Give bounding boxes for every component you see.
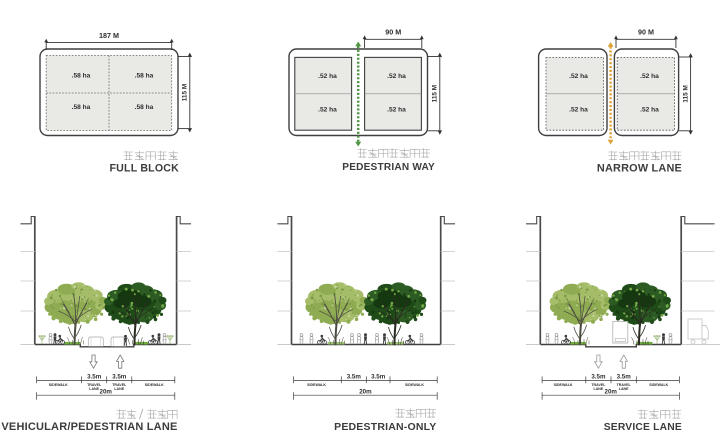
svg-text:LANE: LANE [619,387,629,391]
svg-text:FULL BLOCK: FULL BLOCK [110,162,180,174]
svg-text:SERVICE LANE: SERVICE LANE [604,422,682,433]
svg-text:90 M: 90 M [638,28,654,37]
svg-text:187 M: 187 M [99,31,119,40]
svg-text:.52 ha: .52 ha [569,107,588,114]
svg-text:3.5m: 3.5m [87,373,102,380]
svg-text:SIDEWALK: SIDEWALK [145,383,164,387]
svg-text:.58 ha: .58 ha [72,73,91,80]
svg-text:SIDEWALK: SIDEWALK [307,383,326,387]
svg-text:SIDEWALK: SIDEWALK [405,383,424,387]
svg-text:115 M: 115 M [682,85,689,102]
svg-text:.58 ha: .58 ha [135,104,154,111]
svg-text:3.5m: 3.5m [617,373,632,380]
svg-text:.52 ha: .52 ha [569,73,588,80]
svg-text:3.5m: 3.5m [112,373,127,380]
svg-text:PEDESTRIAN-ONLY: PEDESTRIAN-ONLY [334,421,436,433]
svg-text:.58 ha: .58 ha [135,73,154,80]
svg-text:.52 ha: .52 ha [640,107,659,114]
svg-text:NARROW LANE: NARROW LANE [597,162,682,174]
svg-text:115 M: 115 M [182,84,189,101]
svg-text:VEHICULAR/PEDESTRIAN LANE: VEHICULAR/PEDESTRIAN LANE [1,421,177,433]
svg-text:3.5m: 3.5m [371,373,386,380]
svg-text:LANE: LANE [89,387,99,391]
svg-text:115 M: 115 M [432,85,439,102]
svg-text:3.5m: 3.5m [347,373,362,380]
svg-text:SIDEWALK: SIDEWALK [554,383,573,387]
svg-text:90 M: 90 M [385,28,401,37]
svg-text:20m: 20m [359,389,372,396]
svg-text:20m: 20m [605,389,618,396]
svg-text:LANE: LANE [594,387,604,391]
svg-text:.52 ha: .52 ha [640,73,659,80]
svg-text:.52 ha: .52 ha [387,107,406,114]
svg-text:SIDEWALK: SIDEWALK [49,383,68,387]
svg-text:.52 ha: .52 ha [318,107,337,114]
svg-text:.52 ha: .52 ha [387,73,406,80]
svg-text:PEDESTRIAN WAY: PEDESTRIAN WAY [342,162,435,173]
svg-text:LANE: LANE [114,387,124,391]
svg-text:20m: 20m [100,389,113,396]
svg-text:.58 ha: .58 ha [72,104,91,111]
svg-text:3.5m: 3.5m [591,373,606,380]
svg-text:.52 ha: .52 ha [318,73,337,80]
svg-text:SIDEWALK: SIDEWALK [649,383,668,387]
